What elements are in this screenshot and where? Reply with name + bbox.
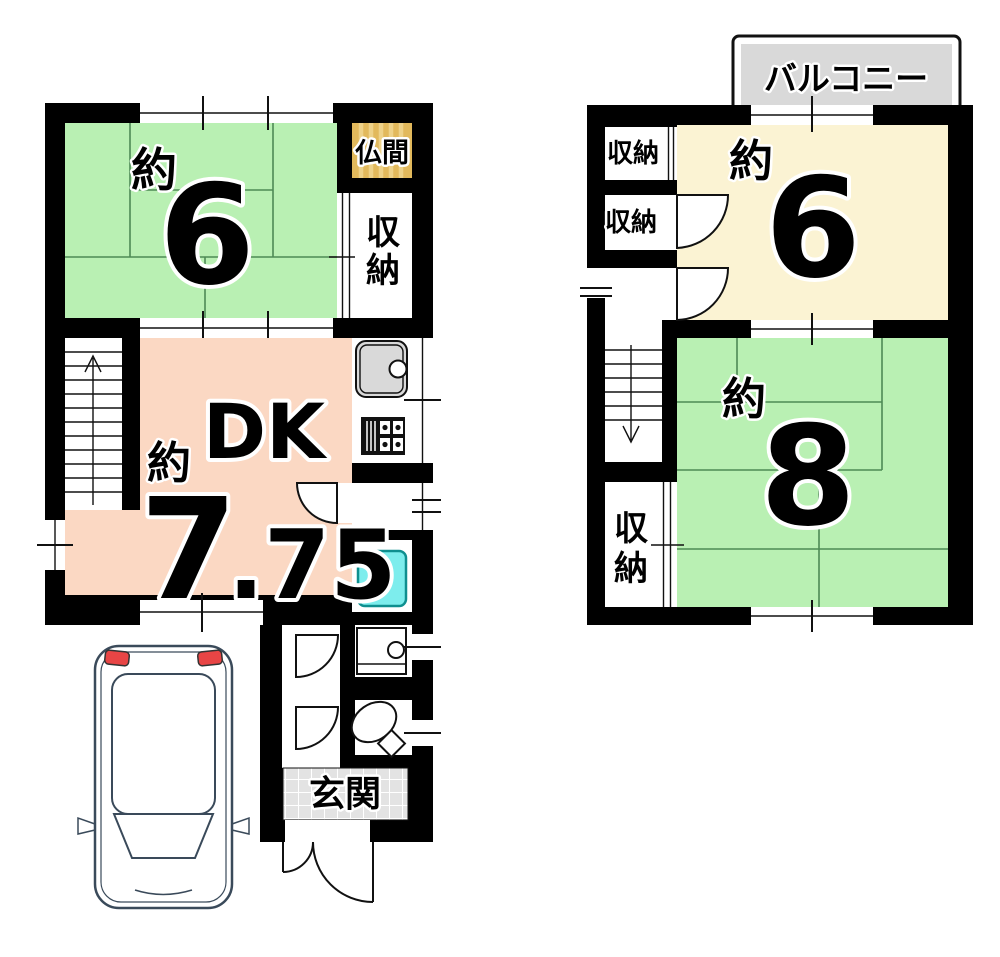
floor-plan-image: 約 6 仏間 収 納 DK 約 7 .75 玄関 バルコニー xyxy=(0,0,1000,957)
taillight-left xyxy=(104,650,129,666)
window-2f-left xyxy=(587,268,605,298)
dk-size-int-label: 7 xyxy=(140,469,237,632)
room6-1f-size-label: 6 xyxy=(159,155,255,316)
second-floor-plan: バルコニー xyxy=(580,36,973,632)
door-opening-2f-room6 xyxy=(662,268,677,320)
hall-stairs-2f xyxy=(605,268,662,462)
balcony-label: バルコニー xyxy=(764,59,928,98)
closet-sliding-strip-1f xyxy=(337,193,355,318)
washbasin-icon xyxy=(357,628,406,674)
butsuma-label: 仏間 xyxy=(355,138,409,169)
stove-icon xyxy=(361,417,405,455)
room6-2f-size-label: 6 xyxy=(765,148,861,309)
closet-1f-label-char1: 収 xyxy=(366,213,400,253)
closet-2f-top-label: 収納 xyxy=(607,138,659,169)
closet-2f-bottom-label-char1: 収 xyxy=(614,509,648,549)
dk-size-frac-label: .75 xyxy=(228,511,396,621)
closet-1f-label-char2: 納 xyxy=(366,251,400,291)
dk-name-label: DK xyxy=(203,387,328,476)
room8-2f-size-label: 8 xyxy=(760,396,856,557)
entry-opening xyxy=(285,820,370,842)
kitchen-sink-icon xyxy=(356,341,407,397)
entrance-label: 玄関 xyxy=(309,774,381,815)
floor-plan-svg: 約 6 仏間 収 納 DK 約 7 .75 玄関 バルコニー xyxy=(0,0,1000,957)
dk-room-extension xyxy=(65,510,140,595)
taillight-right xyxy=(197,650,222,666)
closet-2f-mid-label: 収納 xyxy=(605,207,657,238)
door-opening-2f-closet xyxy=(662,195,677,250)
closet-2f-bottom-label-char2: 納 xyxy=(614,549,648,589)
closet-2f-top-strip xyxy=(665,127,677,180)
